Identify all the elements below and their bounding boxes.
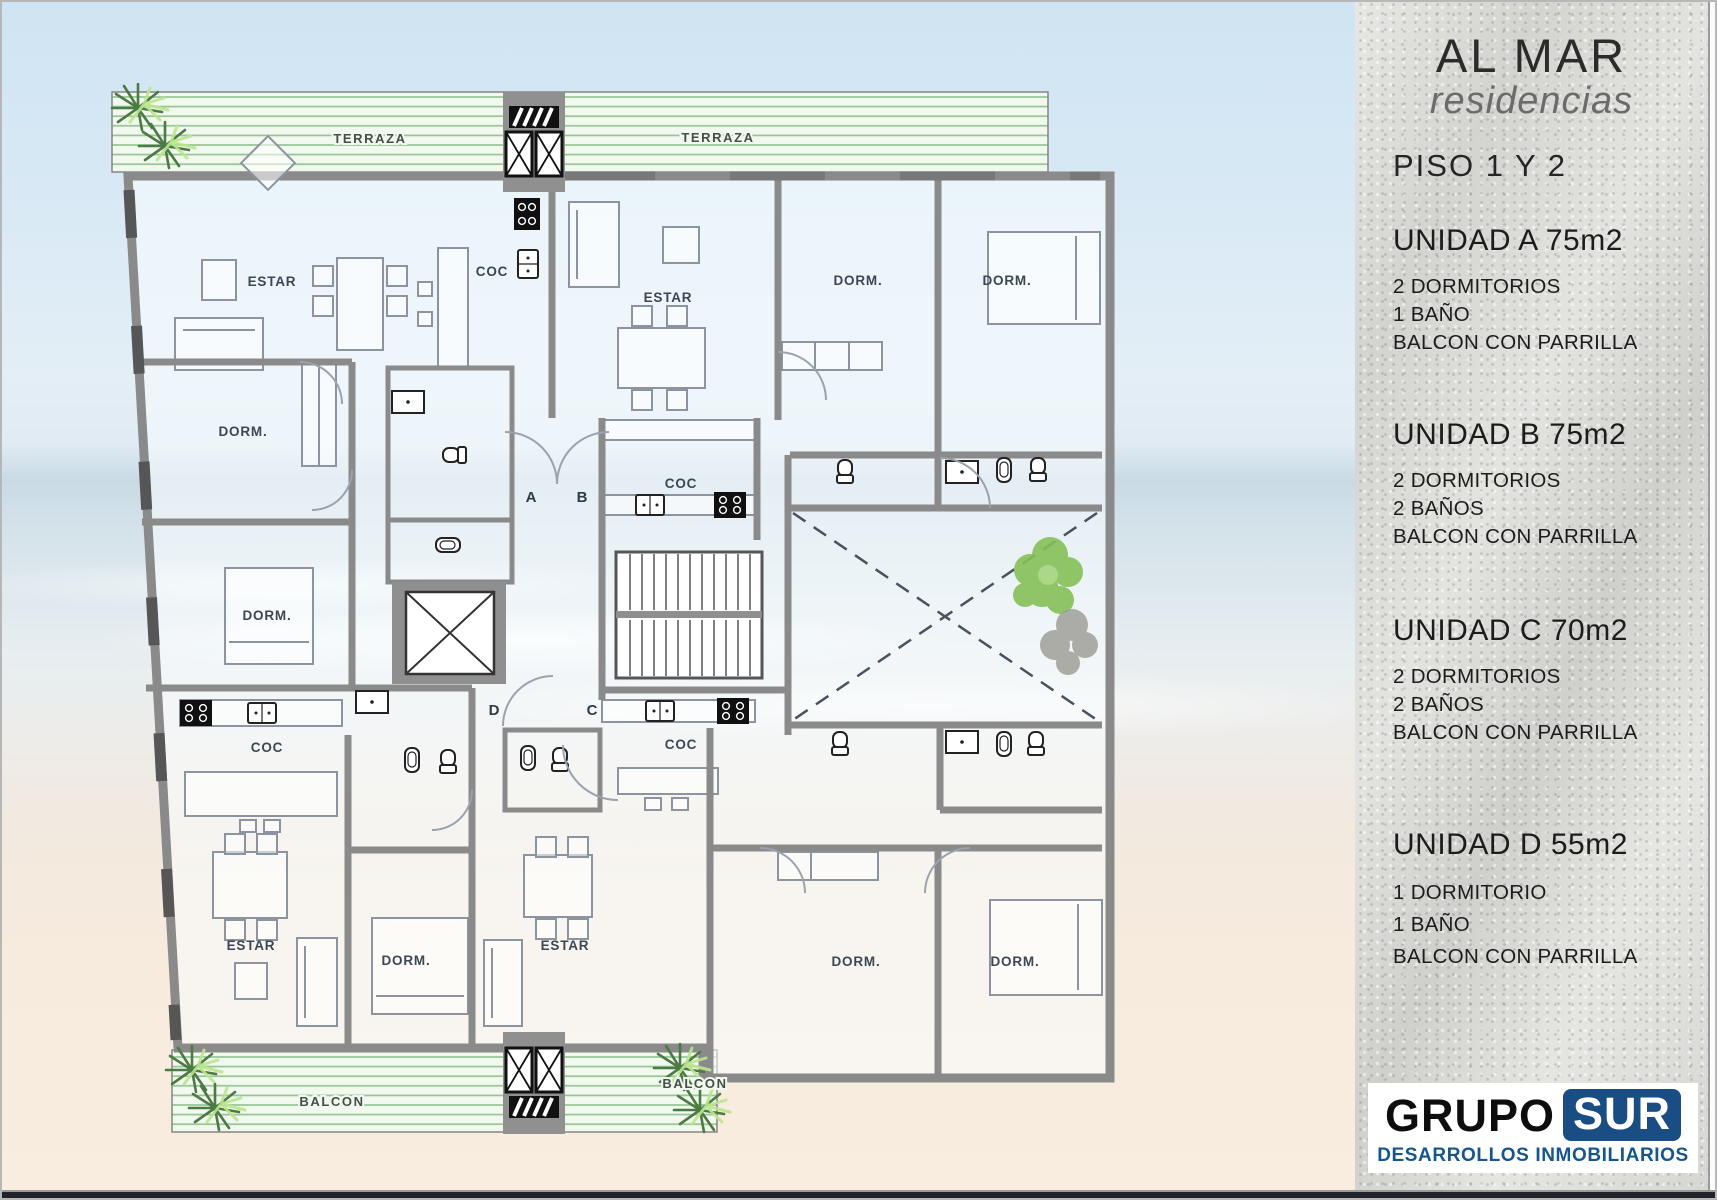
room-label-estar-b: ESTAR: [644, 290, 693, 305]
unit-c-feature: BALCON CON PARRILLA: [1393, 719, 1693, 747]
door-label-b: B: [577, 489, 588, 506]
unit-b-feature: 2 BAÑOS: [1393, 495, 1693, 523]
room-label-dorm-a1: DORM.: [219, 424, 268, 439]
project-subtitle: residencias: [1355, 80, 1708, 123]
unit-a-name: UNIDAD A 75m2: [1393, 224, 1693, 258]
unit-d-feature: 1 BAÑO: [1393, 909, 1693, 941]
floor-label: PISO 1 Y 2: [1393, 148, 1567, 184]
room-label-dorm-b1: DORM.: [834, 273, 883, 288]
vent-hatch-icon: [509, 106, 559, 128]
unit-d-feature: 1 DORMITORIO: [1393, 877, 1693, 909]
unit-a-block: UNIDAD A 75m2 2 DORMITORIOS 1 BAÑO BALCO…: [1393, 224, 1693, 357]
terraza-label: TERRAZA: [333, 131, 406, 146]
grupo-sur-logo: GRUPO SUR DESARROLLOS INMOBILIARIOS: [1368, 1083, 1698, 1173]
unit-d-feature: BALCON CON PARRILLA: [1393, 941, 1693, 973]
unit-b-feature: 2 DORMITORIOS: [1393, 467, 1693, 495]
stairs-icon: [616, 552, 762, 678]
room-label-coc-a: COC: [476, 264, 508, 279]
info-sidebar: AL MAR residencias PISO 1 Y 2 UNIDAD A 7…: [1355, 0, 1708, 1200]
balcon-label: BALCON: [662, 1076, 727, 1091]
vent-hatch-icon: [509, 1096, 559, 1118]
balcon-band: [172, 1050, 717, 1132]
project-title: AL MAR: [1355, 28, 1708, 83]
unit-c-feature: 2 DORMITORIOS: [1393, 663, 1693, 691]
shaft-top: [503, 92, 565, 192]
door-label-c: C: [587, 702, 598, 719]
room-label-estar-d: ESTAR: [227, 938, 276, 953]
unit-b-block: UNIDAD B 75m2 2 DORMITORIOS 2 BAÑOS BALC…: [1393, 418, 1693, 551]
door-label-d: D: [489, 702, 500, 719]
unit-a-feature: BALCON CON PARRILLA: [1393, 329, 1693, 357]
room-label-dorm-c2: DORM.: [991, 954, 1040, 969]
unit-a-feature: 1 BAÑO: [1393, 301, 1693, 329]
door-label-a: A: [526, 489, 537, 506]
unit-b-name: UNIDAD B 75m2: [1393, 418, 1693, 452]
balcon-label: BALCON: [299, 1094, 364, 1109]
page-right-margin: [1708, 0, 1717, 1190]
logo-tagline: DESARROLLOS INMOBILIARIOS: [1377, 1145, 1689, 1167]
room-label-estar-a: ESTAR: [248, 274, 297, 289]
unit-c-name: UNIDAD C 70m2: [1393, 614, 1693, 648]
page-bottom-rule: [0, 1190, 1717, 1198]
elevator-icon: [392, 582, 506, 684]
room-label-coc-b: COC: [665, 476, 697, 491]
room-label-dorm-a2: DORM.: [243, 608, 292, 623]
room-label-dorm-c1: DORM.: [832, 954, 881, 969]
room-label-dorm-d: DORM.: [382, 953, 431, 968]
unit-d-block: UNIDAD D 55m2 1 DORMITORIO 1 BAÑO BALCON…: [1393, 828, 1693, 973]
shaft-bottom: [503, 1032, 565, 1134]
room-label-dorm-b2: DORM.: [983, 273, 1032, 288]
logo-grupo-text: GRUPO: [1385, 1093, 1555, 1138]
room-label-coc-c: COC: [665, 737, 697, 752]
unit-a-feature: 2 DORMITORIOS: [1393, 273, 1693, 301]
unit-b-feature: BALCON CON PARRILLA: [1393, 523, 1693, 551]
unit-c-block: UNIDAD C 70m2 2 DORMITORIOS 2 BAÑOS BALC…: [1393, 614, 1693, 747]
unit-d-name: UNIDAD D 55m2: [1393, 828, 1693, 862]
room-label-coc-d: COC: [251, 740, 283, 755]
logo-sur-badge: SUR: [1563, 1089, 1681, 1141]
unit-c-feature: 2 BAÑOS: [1393, 691, 1693, 719]
room-label-estar-c: ESTAR: [541, 938, 590, 953]
terraza-label: TERRAZA: [681, 130, 754, 145]
